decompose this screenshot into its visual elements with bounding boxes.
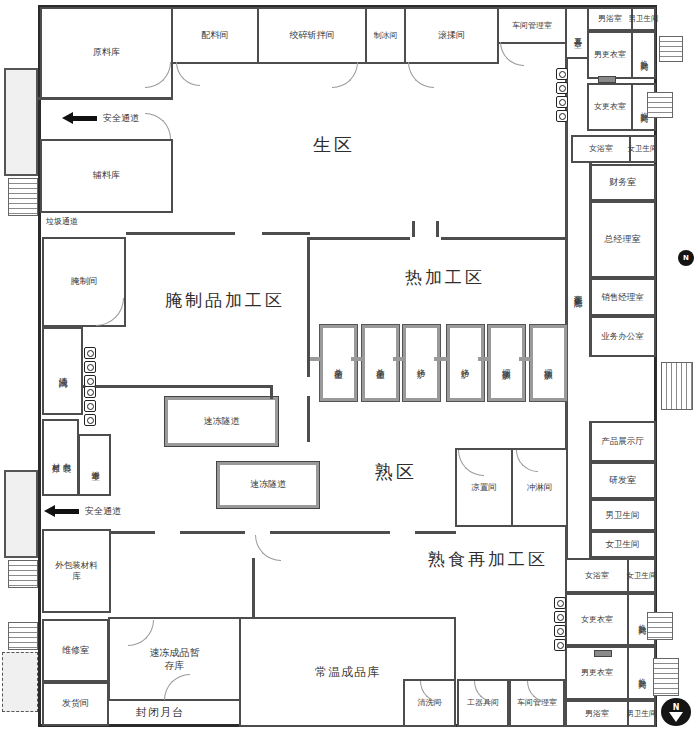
equip-smoker-2: 烟熏炉 xyxy=(530,325,567,401)
sink-group-bottom-right xyxy=(554,597,566,651)
compass-arrow-icon xyxy=(669,712,683,722)
garbage-passage-label: 垃圾通道 xyxy=(46,216,78,227)
equip-label: 烤炉 xyxy=(416,362,427,364)
room-label: 女浴室 xyxy=(589,144,613,154)
room-label: 常温成品库 xyxy=(315,665,380,680)
equip-connector xyxy=(309,357,320,361)
zone-label-cured-processing: 腌制品加工区 xyxy=(165,289,285,312)
equip-sterilizer-1: 杀菌釜 xyxy=(320,325,357,401)
room-tool-room-top: 工器具室 xyxy=(565,7,589,59)
sink-icon xyxy=(554,611,566,623)
equip-smoker-1: 烟熏炉 xyxy=(488,325,525,401)
room-ice-making: 制冰间 xyxy=(365,7,406,64)
room-shipping: 发货间 xyxy=(42,682,109,726)
wall-secondary-packing-c xyxy=(270,531,390,534)
equip-connector xyxy=(393,357,403,361)
north-compass-icon: N xyxy=(661,698,691,726)
room-mens-toilet-top: 男卫生间 xyxy=(631,7,656,31)
room-mens-changing-top: 男更衣室 xyxy=(587,31,633,79)
equip-label: 烤炉 xyxy=(460,362,471,364)
room-grinding-chopping: 绞碎斩拌间 xyxy=(257,7,367,64)
room-label: 辅料库 xyxy=(93,170,120,181)
room-mens-bath-top: 男浴室 xyxy=(587,7,633,31)
stairs-main-entrance xyxy=(661,362,693,410)
equip-label: 烟熏炉 xyxy=(501,362,512,365)
stairs-top-right-1 xyxy=(659,36,683,62)
safety-passage-label-bottom: 安全通道 xyxy=(85,505,121,518)
room-label: 发货间 xyxy=(62,698,89,709)
room-label: 研发室 xyxy=(609,475,636,486)
arrow-head-icon xyxy=(62,112,73,124)
room-label: 男浴室 xyxy=(585,709,609,719)
room-label: 滚揉间 xyxy=(438,30,465,41)
room-womens-toilet-bottom: 女卫生间 xyxy=(627,558,656,593)
room-label: 腌制间 xyxy=(71,276,98,287)
door-leaf-right xyxy=(436,221,439,237)
sink-group-washroom-upper xyxy=(84,347,96,387)
compass-n-label: N xyxy=(683,254,689,262)
room-womens-changing-top: 女更衣室 xyxy=(587,83,633,131)
room-label: 制冰间 xyxy=(374,31,398,41)
sink-icon xyxy=(84,347,96,359)
zone-label-cooked: 熟区 xyxy=(375,460,417,484)
room-shoe-change-1: 换鞋间 xyxy=(631,31,656,79)
bench xyxy=(598,76,616,83)
room-label: 换鞋间 xyxy=(637,672,647,675)
room-finance: 财务室 xyxy=(589,164,656,201)
stairs-mid-left xyxy=(8,560,38,588)
wall-hot-area-top-right xyxy=(441,237,567,240)
wall-safety-corridor-top xyxy=(38,97,173,100)
sink-icon xyxy=(84,386,96,398)
sink-icon xyxy=(554,597,566,609)
safety-passage-label-top: 安全通道 xyxy=(103,112,139,125)
room-label: 换鞋间 xyxy=(639,54,649,57)
room-label: 绞碎斩拌间 xyxy=(290,30,335,41)
room-workshop-management-top: 车间管理室 xyxy=(497,7,567,44)
room-mens-toilet-mid: 男卫生间 xyxy=(589,499,656,531)
room-label: 材料库 xyxy=(50,456,60,459)
wall-secondary-packing-d xyxy=(415,531,456,534)
room-label: 财务室 xyxy=(609,177,636,188)
room-label: 配料间 xyxy=(202,30,229,41)
room-label: 内包装 xyxy=(61,456,71,459)
sink-icon xyxy=(84,414,96,426)
arrow-shaft xyxy=(73,116,97,121)
room-label: 女更衣室 xyxy=(581,615,613,625)
compass-n-label: N xyxy=(673,703,680,712)
room-label: 业务办公室 xyxy=(601,331,644,342)
room-maintenance: 维修室 xyxy=(42,619,109,682)
room-label: 女更衣室 xyxy=(594,102,626,112)
room-product-display-hall: 产品展示厅 xyxy=(589,421,656,462)
wall-zone-divider-a xyxy=(126,232,235,235)
wall-cooked-divider xyxy=(252,558,255,618)
equip-label: 杀菌釜 xyxy=(333,362,344,365)
dock-bottom-left-dashed xyxy=(2,652,38,712)
safety-passage-arrow-top xyxy=(62,112,97,124)
stairs-bottom-right-2 xyxy=(653,658,679,696)
room-shoe-change-4: 换鞋间 xyxy=(627,646,656,700)
room-tumbling: 滚揉间 xyxy=(404,7,499,64)
room-outer-packaging-material: 外包装材料库 xyxy=(42,529,111,613)
freeze-tunnel-1: 速冻隧道 xyxy=(165,397,278,446)
room-label: 女浴室 xyxy=(585,571,609,581)
room-label: 清洗间 xyxy=(57,370,68,373)
room-label: 男卫生间 xyxy=(627,709,657,718)
sink-icon xyxy=(554,639,566,651)
stairs-bottom-right-1 xyxy=(647,612,673,640)
room-ingredient: 配料间 xyxy=(171,7,259,64)
room-label: 原料库 xyxy=(93,47,120,58)
wall-hot-area-top-left xyxy=(307,237,410,240)
north-compass-icon-small: N xyxy=(678,250,694,266)
equip-oven-2: 烤炉 xyxy=(447,325,484,401)
room-washing-left: 清洗间 xyxy=(42,327,83,415)
safety-passage-arrow-bottom xyxy=(44,505,79,517)
equip-label: 杀菌釜 xyxy=(375,362,386,365)
closed-platform-label: 封闭月台 xyxy=(136,705,184,720)
room-sales-manager: 销售经理室 xyxy=(589,278,656,316)
room-general-manager: 总经理室 xyxy=(589,201,656,278)
equip-connector xyxy=(434,357,447,361)
door-leaf-left xyxy=(412,221,415,237)
room-rnd: 研发室 xyxy=(589,462,656,499)
equip-sterilizer-2: 杀菌釜 xyxy=(362,325,399,401)
room-womens-changing-bottom: 女更衣室 xyxy=(565,593,629,646)
room-label: 男更衣室 xyxy=(581,668,613,678)
room-label: 车间管理室 xyxy=(512,21,552,31)
room-womens-bath-top: 女浴室 xyxy=(571,135,631,163)
arrow-shaft xyxy=(55,509,79,514)
room-label: 凉置间 xyxy=(471,482,497,493)
room-label: 消毒室 xyxy=(90,464,100,467)
wall-primary-packing-north xyxy=(83,385,273,388)
equip-connector xyxy=(478,357,488,361)
zone-label-hot-processing: 热加工区 xyxy=(405,266,485,289)
bench xyxy=(594,650,612,657)
stairs-top-left xyxy=(8,178,38,216)
room-label: 产品展示厅 xyxy=(601,436,644,447)
room-label: 外包装材料库 xyxy=(55,560,98,582)
loading-dock-top-left xyxy=(4,68,38,176)
tunnel-label: 速冻隧道 xyxy=(250,479,286,490)
sink-icon xyxy=(556,96,568,108)
room-label: 维修室 xyxy=(62,645,89,656)
room-label: 速冻成品暂存库 xyxy=(150,646,200,672)
sink-icon xyxy=(556,82,568,94)
sink-icon xyxy=(84,361,96,373)
stairs-lower-left xyxy=(8,622,38,650)
room-business-office: 业务办公室 xyxy=(589,316,656,357)
room-inner-packaging-material: 材料库 内包装 xyxy=(42,419,79,496)
room-label: 男卫生间 xyxy=(606,510,640,521)
factory-floor-plan: 原料库 配料间 绞碎斩拌间 制冰间 滚揉间 车间管理室 工器具室 男浴室 男卫生… xyxy=(0,0,698,733)
room-aux-material-warehouse: 辅料库 xyxy=(40,139,173,213)
wall-stub xyxy=(270,385,273,399)
wall-secondary-packing-b xyxy=(180,531,245,534)
room-label: 换鞋间 xyxy=(637,618,647,621)
room-label: 男浴室 xyxy=(598,14,622,24)
room-label: 销售经理室 xyxy=(601,292,644,303)
equip-oven-1: 烤炉 xyxy=(403,325,440,401)
wall-hot-area-left-lower xyxy=(307,396,310,442)
sink-icon xyxy=(556,110,568,122)
stairs-top-right-2 xyxy=(647,92,673,118)
room-label: 女卫生间 xyxy=(627,571,657,580)
arrow-head-icon xyxy=(44,505,55,517)
sink-group-top-right xyxy=(556,68,568,122)
corridor-east-wall-upper xyxy=(589,163,592,357)
room-womens-bath-bottom: 女浴室 xyxy=(565,558,629,593)
sink-icon xyxy=(554,625,566,637)
equip-connector xyxy=(519,357,530,361)
sink-group-washroom-lower xyxy=(84,386,96,426)
room-disinfection: 消毒室 xyxy=(78,434,111,496)
sink-icon xyxy=(84,400,96,412)
room-label: 女卫生间 xyxy=(628,144,658,153)
freeze-tunnel-2: 速冻隧道 xyxy=(217,462,319,508)
room-womens-toilet-mid: 女卫生间 xyxy=(589,531,656,558)
corridor-label: 参观走廊 xyxy=(571,288,584,292)
loading-dock-mid-left xyxy=(4,470,38,558)
zone-label-cooked-reprocessing: 熟食再加工区 xyxy=(428,548,548,571)
room-mens-bath-bottom: 男浴室 xyxy=(565,700,629,727)
room-label: 工器具室 xyxy=(572,31,582,35)
zone-label-raw: 生区 xyxy=(313,133,355,157)
corridor-east-wall-lower xyxy=(589,421,592,558)
sink-icon xyxy=(556,68,568,80)
wall-secondary-packing-a xyxy=(110,531,155,534)
room-womens-toilet-top: 女卫生间 xyxy=(629,135,656,163)
equip-label: 烟熏炉 xyxy=(543,362,554,365)
tunnel-label: 速冻隧道 xyxy=(204,416,240,427)
room-label: 男更衣室 xyxy=(594,50,626,60)
room-label: 总经理室 xyxy=(605,234,641,245)
room-label: 冲淋间 xyxy=(527,482,553,493)
wall-hot-area-left-upper xyxy=(307,237,310,377)
equip-connector xyxy=(351,357,362,361)
room-label: 女卫生间 xyxy=(606,539,640,550)
room-mens-toilet-bottom: 男卫生间 xyxy=(627,700,656,727)
room-label: 男卫生间 xyxy=(629,14,659,23)
wall-zone-divider-b xyxy=(262,232,310,235)
